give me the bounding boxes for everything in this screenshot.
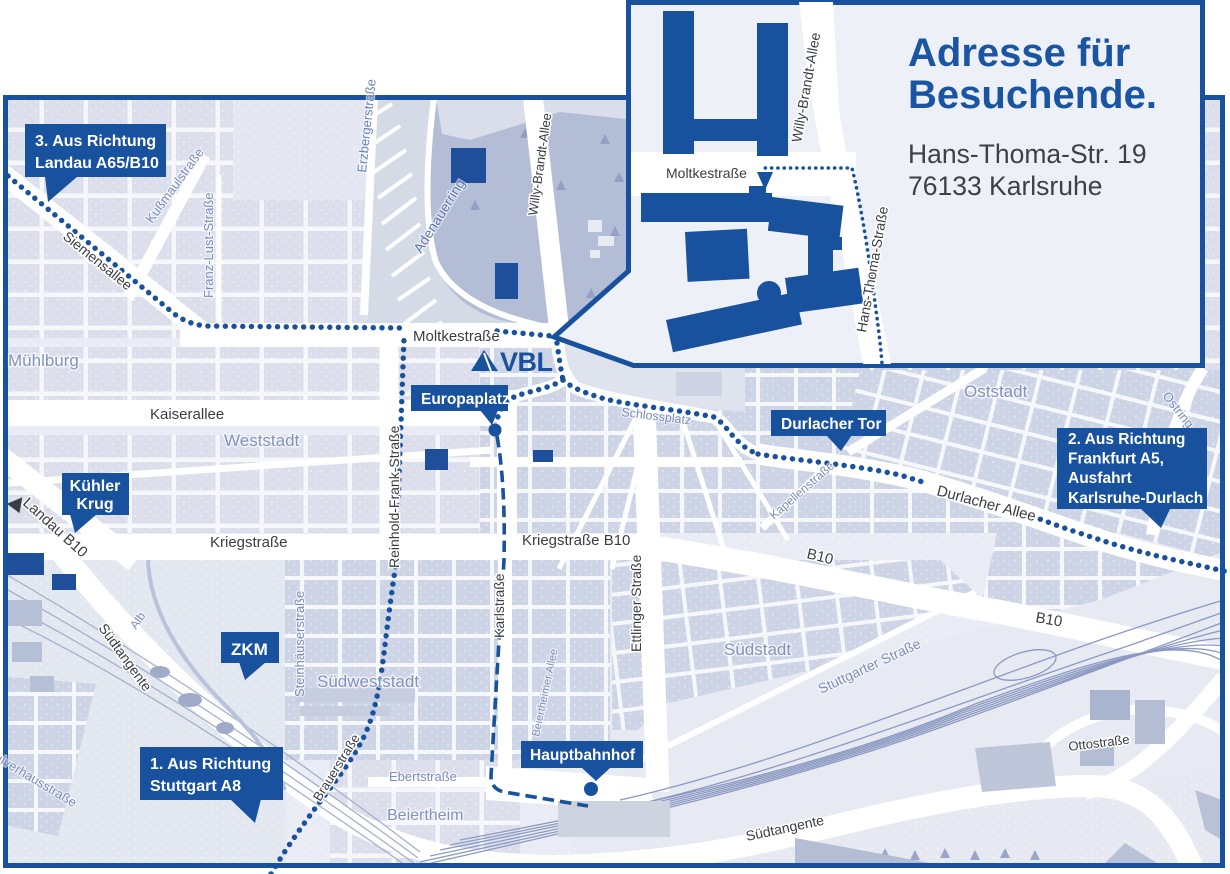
svg-text:Weststadt: Weststadt [224, 431, 300, 450]
svg-text:Stuttgart A8: Stuttgart A8 [150, 778, 241, 795]
svg-text:Europaplatz: Europaplatz [421, 391, 510, 408]
svg-text:Durlacher Tor: Durlacher Tor [781, 416, 882, 433]
svg-text:Kriegstraße B10: Kriegstraße B10 [522, 532, 630, 549]
svg-text:Kriegstraße: Kriegstraße [210, 534, 288, 551]
svg-text:Karlsruhe-Durlach: Karlsruhe-Durlach [1068, 490, 1203, 507]
svg-text:VBL: VBL [500, 347, 553, 377]
svg-text:Krug: Krug [76, 496, 113, 513]
svg-text:Ebertstraße: Ebertstraße [389, 769, 457, 784]
svg-text:Mühlburg: Mühlburg [8, 351, 79, 370]
svg-text:Moltkestraße: Moltkestraße [413, 328, 500, 345]
svg-text:Karlstraße: Karlstraße [491, 573, 507, 638]
svg-text:1. Aus Richtung: 1. Aus Richtung [150, 756, 271, 773]
svg-text:Steinhäuserstraße: Steinhäuserstraße [292, 591, 307, 697]
svg-text:Oststadt: Oststadt [964, 382, 1028, 401]
svg-text:ZKM: ZKM [231, 640, 268, 659]
svg-text:Kühler: Kühler [70, 478, 121, 495]
svg-text:2. Aus Richtung: 2. Aus Richtung [1068, 431, 1185, 448]
svg-text:Südstadt: Südstadt [724, 640, 791, 659]
svg-text:Beiertheim: Beiertheim [387, 807, 463, 824]
svg-text:76133 Karlsruhe: 76133 Karlsruhe [908, 171, 1102, 201]
svg-text:Landau A65/B10: Landau A65/B10 [35, 155, 159, 172]
svg-text:Hauptbahnhof: Hauptbahnhof [530, 747, 636, 764]
svg-text:Südweststadt: Südweststadt [317, 672, 419, 691]
svg-text:Frankfurt A5,: Frankfurt A5, [1068, 451, 1164, 468]
svg-text:Moltkestraße: Moltkestraße [666, 165, 747, 181]
svg-text:Besuchende.: Besuchende. [908, 73, 1157, 117]
svg-text:Ettlinger Straße: Ettlinger Straße [628, 555, 644, 652]
svg-text:Hans-Thoma-Str. 19: Hans-Thoma-Str. 19 [908, 139, 1147, 169]
svg-text:Adresse für: Adresse für [908, 31, 1130, 75]
svg-text:Reinhold-Frank-Straße: Reinhold-Frank-Straße [386, 425, 402, 568]
svg-text:Ausfahrt: Ausfahrt [1068, 470, 1132, 487]
svg-text:Kaiserallee: Kaiserallee [150, 406, 224, 423]
svg-text:Franz-Lust-Straße: Franz-Lust-Straße [201, 193, 216, 298]
svg-text:3. Aus Richtung: 3. Aus Richtung [35, 133, 156, 150]
